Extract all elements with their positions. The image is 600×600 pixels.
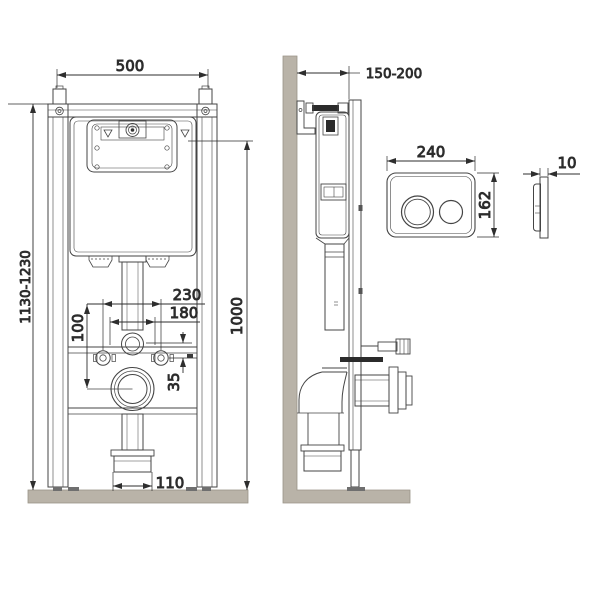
outlet-box [111,450,154,456]
flush-plate [387,173,475,237]
flush-button-large [402,196,434,228]
flush-plate-side-dimensions: 10 [523,154,580,177]
side-view [283,56,412,503]
bracket-screw [202,107,210,115]
dim-bolt-offset: 35 [165,372,183,391]
flush-pipe [119,256,146,262]
front-dimensions: 500 1130-1230 1000 230 180 100 [8,57,253,492]
dim-outlet-width: 110 [156,474,185,492]
left-wall-bracket [53,89,66,104]
side-outlet-box [301,445,344,451]
plate-profile-front [534,184,541,231]
bracket-screw [56,107,64,115]
frame-foot [186,487,197,491]
pan-outlet-pipe [355,375,389,406]
installation-frame-drawing: 500 1130-1230 1000 230 180 100 [0,0,600,600]
side-dimensions: 150-200 [297,66,422,99]
access-panel [87,120,177,172]
dim-plate-height: 162 [476,191,494,220]
dim-front-height-range: 1130-1230 [18,250,34,324]
flush-plate-side [534,177,549,238]
right-wall-bracket [199,89,212,104]
tank-clip [89,256,112,267]
dim-reference-height: 1000 [228,297,246,335]
dim-front-width: 500 [116,57,145,75]
dim-wall-distance: 150-200 [366,66,422,82]
flush-plate-front-dimensions: 240 162 [387,143,499,237]
technical-drawing-page: 500 1130-1230 1000 230 180 100 [0,0,600,600]
front-floor [28,490,248,503]
front-view [28,86,248,503]
frame-foot [68,487,79,491]
tank-clip [146,256,169,267]
frame-left-rail [48,104,68,487]
frame-foot [53,487,62,491]
frame-foot [202,487,211,491]
level-mark-triangle [104,130,112,137]
bracket-rod [312,105,339,111]
dim-plate-width: 240 [417,143,446,161]
dim-plate-thickness: 10 [557,154,576,172]
side-frame-foot [347,487,365,491]
flush-valve-detail [321,184,346,200]
plate-profile-back [540,177,548,238]
frame-top-bar [48,104,217,117]
pipe-bend-joint [122,333,144,355]
flush-plate-front [387,173,475,237]
inlet-stub [378,342,397,351]
fixing-rod [340,357,383,362]
flush-button-small [440,201,463,224]
dim-fixing-span-inner: 180 [170,304,199,322]
level-mark-triangle [181,130,189,137]
dim-fixing-span-outer: 230 [173,286,202,304]
side-wall-floor [283,56,410,503]
dim-drain-offset: 100 [69,314,87,343]
